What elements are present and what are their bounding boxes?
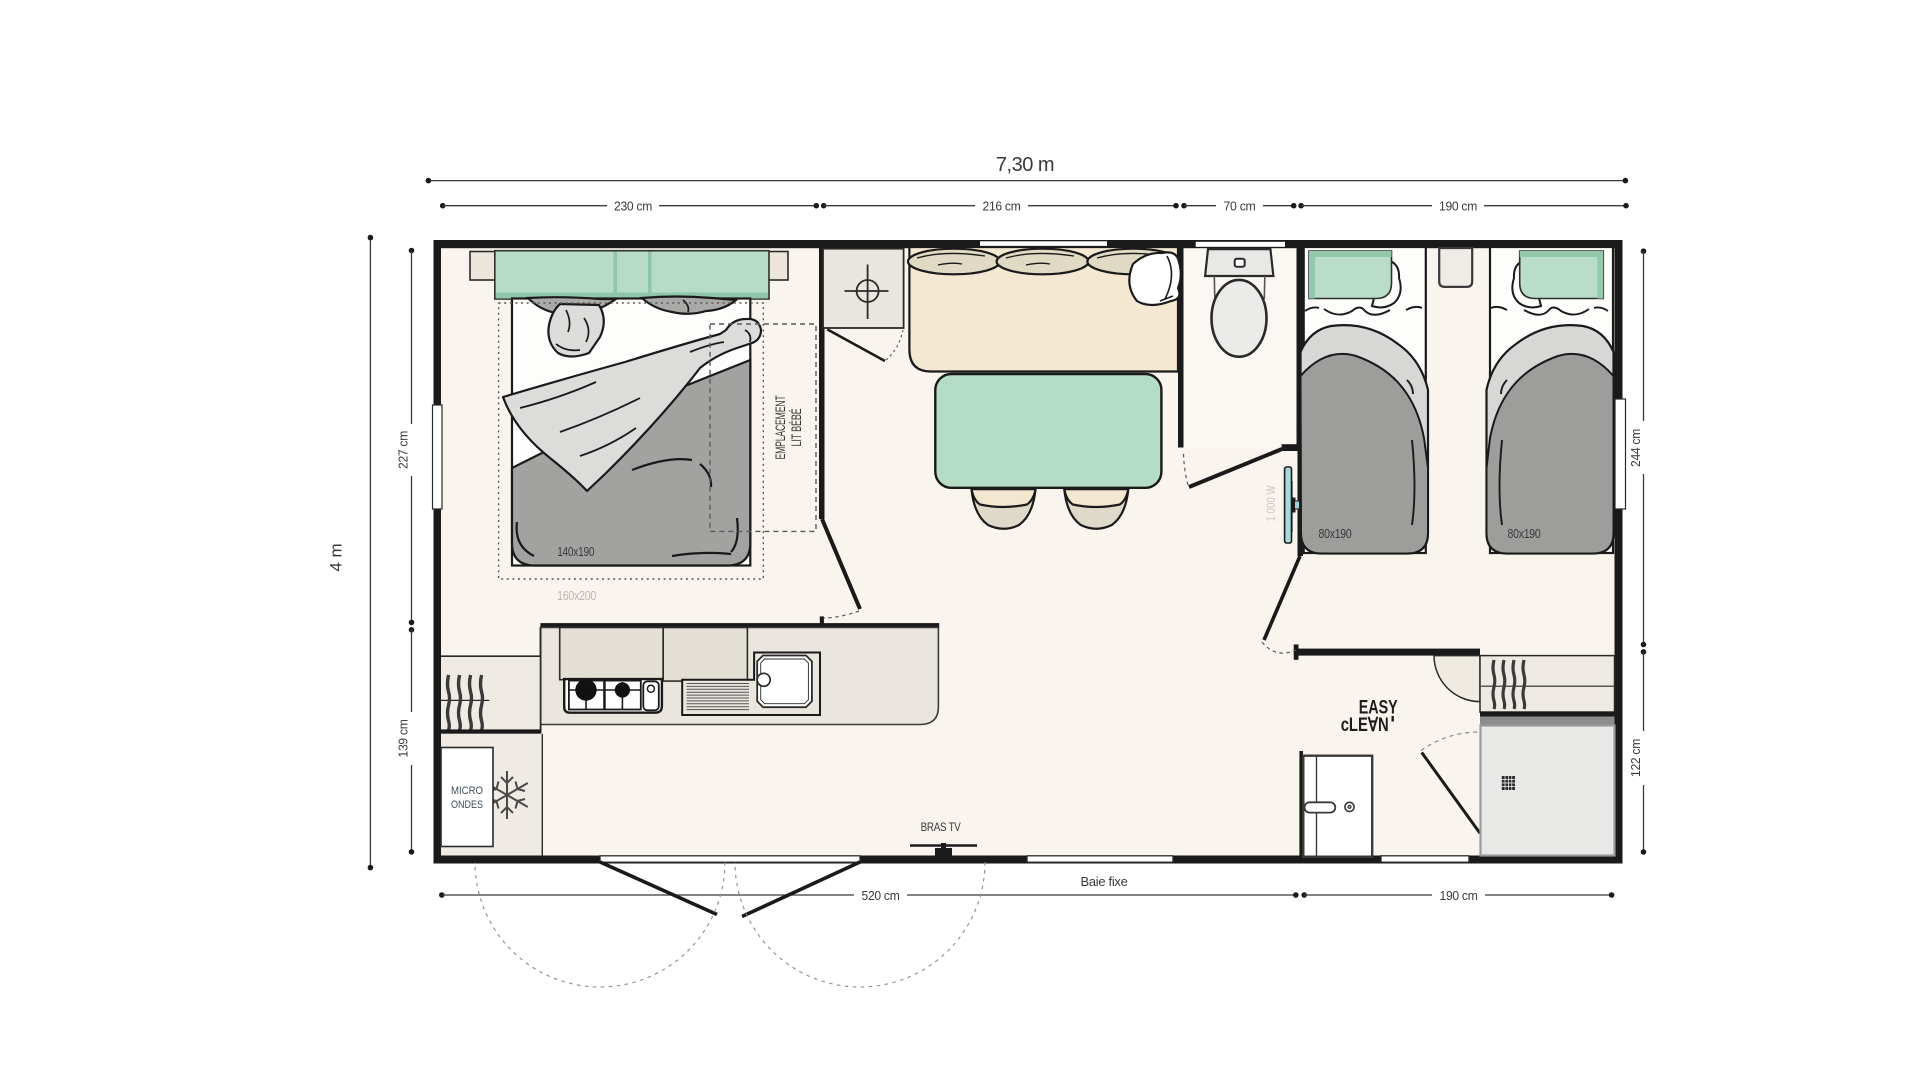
svg-text:190 cm: 190 cm [1439,199,1477,214]
svg-text:244 cm: 244 cm [1628,429,1643,467]
svg-text:7,30 m: 7,30 m [996,154,1054,176]
svg-text:80x190: 80x190 [1319,526,1352,541]
svg-text:4 m: 4 m [327,543,346,571]
svg-text:LIT BÉBÉ: LIT BÉBÉ [789,408,804,446]
svg-text:ONDES: ONDES [451,799,483,811]
svg-text:cLE∀N: cLE∀N [1341,715,1389,736]
svg-text:160x200: 160x200 [557,588,596,603]
svg-text:70 cm: 70 cm [1224,199,1256,214]
svg-text:MICRO: MICRO [451,785,483,797]
svg-text:190 cm: 190 cm [1440,888,1478,903]
svg-text:80x190: 80x190 [1508,526,1541,541]
svg-text:227 cm: 227 cm [396,431,411,469]
svg-text:139 cm: 139 cm [396,720,411,758]
svg-text:520 cm: 520 cm [862,888,900,903]
svg-text:1 000 W: 1 000 W [1266,485,1278,521]
svg-text:140x190: 140x190 [557,544,594,559]
svg-text:Baie fixe: Baie fixe [1081,874,1128,889]
svg-text:216 cm: 216 cm [983,199,1021,214]
svg-text:BRAS TV: BRAS TV [921,822,962,834]
svg-text:230 cm: 230 cm [614,199,652,214]
svg-text:EMPLACEMENT: EMPLACEMENT [773,395,788,459]
svg-text:122 cm: 122 cm [1628,739,1643,777]
